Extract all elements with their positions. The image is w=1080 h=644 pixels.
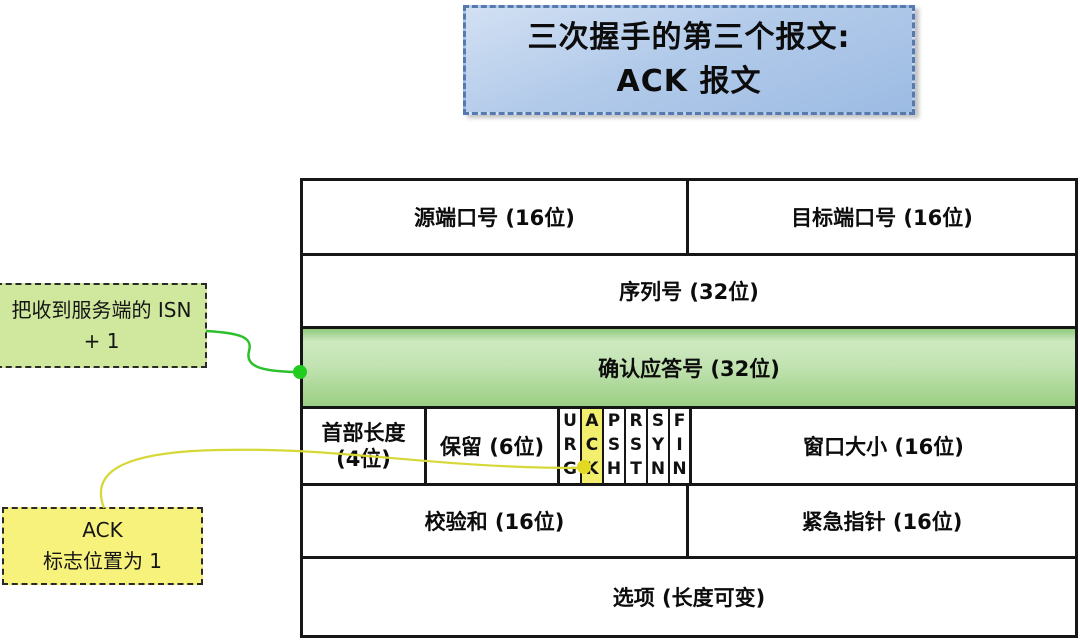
flag-cell-psh: PSH <box>604 409 626 483</box>
ack-note-box: ACK 标志位置为 1 <box>2 507 203 585</box>
cell-options: 选项 (长度可变) <box>303 559 1075 635</box>
cell-reserved: 保留 (6位) <box>427 409 560 483</box>
cell-dest-port: 目标端口号 (16位) <box>689 181 1075 253</box>
row-options: 选项 (长度可变) <box>303 559 1075 635</box>
cell-source-port: 源端口号 (16位) <box>303 181 689 253</box>
cell-window-size: 窗口大小 (16位) <box>692 409 1075 483</box>
cell-header-length: 首部长度 (4位) <box>303 409 427 483</box>
flag-cell-fin: FIN <box>670 409 692 483</box>
cell-ack-number: 确认应答号 (32位) <box>303 329 1075 406</box>
isn-note-box: 把收到服务端的 ISN + 1 <box>0 283 207 368</box>
isn-note-line-2: + 1 <box>84 326 120 357</box>
header-length-line-1: 首部长度 <box>322 420 406 446</box>
ack-note-line-1: ACK <box>82 515 122 546</box>
title-line-2: ACK 报文 <box>617 60 762 104</box>
cell-checksum: 校验和 (16位) <box>303 486 689 556</box>
flag-cell-syn: SYN <box>648 409 670 483</box>
isn-note-line-1: 把收到服务端的 ISN <box>12 295 192 326</box>
tcp-header-table: 源端口号 (16位) 目标端口号 (16位) 序列号 (32位) 确认应答号 (… <box>300 178 1078 638</box>
cell-urgent-pointer: 紧急指针 (16位) <box>689 486 1075 556</box>
row-checksum: 校验和 (16位) 紧急指针 (16位) <box>303 486 1075 559</box>
header-length-line-2: (4位) <box>336 446 391 472</box>
flag-cell-rst: RST <box>626 409 648 483</box>
title-box: 三次握手的第三个报文: ACK 报文 <box>463 5 915 115</box>
row-ports: 源端口号 (16位) 目标端口号 (16位) <box>303 181 1075 256</box>
flag-cell-ack-highlighted: ACK <box>582 409 604 483</box>
row-sequence: 序列号 (32位) <box>303 256 1075 329</box>
ack-note-line-2: 标志位置为 1 <box>43 546 162 577</box>
cell-sequence-number: 序列号 (32位) <box>303 256 1075 326</box>
row-ack-number: 确认应答号 (32位) <box>303 329 1075 409</box>
tcp-ack-diagram: 三次握手的第三个报文: ACK 报文 源端口号 (16位) 目标端口号 (16位… <box>0 0 1080 644</box>
green-connector-line <box>206 331 294 372</box>
flag-cell-urg: URG <box>560 409 582 483</box>
title-line-1: 三次握手的第三个报文: <box>528 16 851 60</box>
row-flags: 首部长度 (4位) 保留 (6位) URG ACK PSH RST SYN FI… <box>303 409 1075 486</box>
